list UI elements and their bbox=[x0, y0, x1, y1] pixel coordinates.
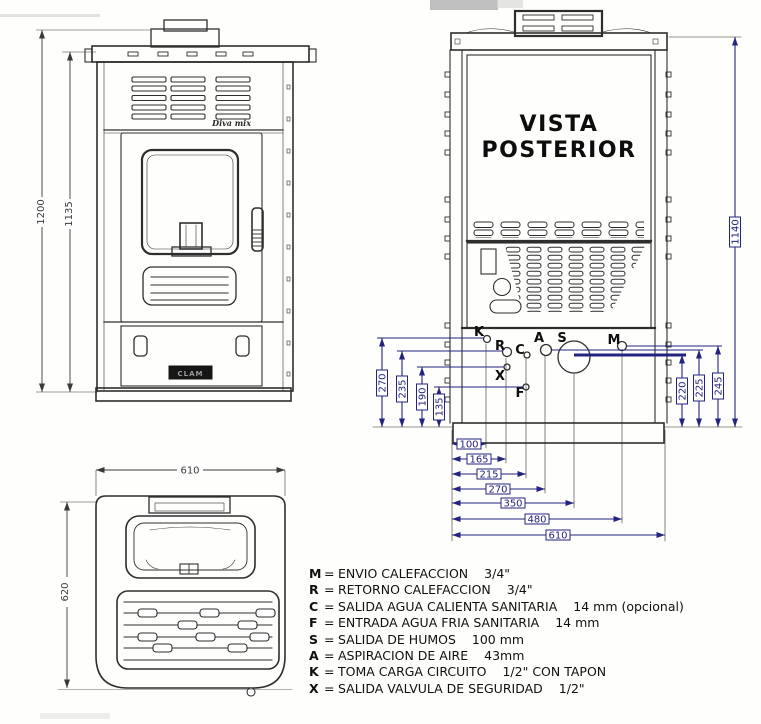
dim-label-215h: 215 bbox=[479, 470, 498, 481]
legend-size: 3/4" bbox=[507, 582, 533, 598]
rear-view-drawing: VISTA POSTERIOR K R C A S M bbox=[373, 11, 742, 541]
port-F-label: F bbox=[516, 386, 525, 401]
top-lid-handle bbox=[149, 497, 230, 513]
port-K-circle bbox=[484, 336, 491, 343]
dim-label-135v: 135 bbox=[435, 397, 446, 416]
legend-description: SALIDA VALVULA DE SEGURIDAD bbox=[338, 681, 543, 697]
technical-drawing-page: Diva mix bbox=[0, 0, 761, 724]
legend-letter: C bbox=[309, 599, 324, 615]
port-C-circle bbox=[524, 352, 530, 358]
dim-label-1135: 1135 bbox=[64, 201, 75, 226]
legend-size: 14 mm bbox=[555, 615, 599, 631]
port-A-label: A bbox=[534, 331, 544, 346]
legend-description: ASPIRACION DE AIRE bbox=[338, 648, 468, 664]
dim-label-610h: 610 bbox=[548, 531, 567, 542]
top-view-dimensions: 610 620 bbox=[58, 465, 285, 689]
legend-description: SALIDA AGUA CALIENTA SANITARIA bbox=[338, 599, 557, 615]
top-plate-slots bbox=[128, 52, 253, 56]
lid bbox=[151, 29, 219, 47]
legend-size: 3/4" bbox=[484, 566, 510, 582]
dim-label-100h: 100 bbox=[459, 440, 478, 451]
dim-label-235v: 235 bbox=[398, 379, 409, 398]
legend-letter: M bbox=[309, 566, 324, 582]
dim-label-1200: 1200 bbox=[36, 199, 47, 224]
legend-size: 1/2" CON TAPON bbox=[502, 664, 606, 680]
dim-label-1140: 1140 bbox=[731, 219, 742, 244]
hinge-marks bbox=[287, 85, 290, 376]
port-A-circle bbox=[541, 345, 552, 356]
legend-item-S: S=SALIDA DE HUMOS100 mm bbox=[309, 632, 684, 648]
hopper-lid bbox=[126, 516, 255, 578]
dim-label-225v: 225 bbox=[695, 378, 706, 397]
legend-separator: = bbox=[324, 632, 338, 648]
legend-item-M: M=ENVIO CALEFACCION3/4" bbox=[309, 566, 684, 582]
port-X-label: X bbox=[495, 369, 505, 384]
dim-label-350h: 350 bbox=[503, 499, 522, 510]
legend-item-R: R=RETORNO CALEFACCION3/4" bbox=[309, 582, 684, 598]
dim-label-480h: 480 bbox=[527, 515, 546, 526]
legend-description: TOMA CARGA CIRCUITO bbox=[338, 664, 486, 680]
legend-letter: A bbox=[309, 648, 324, 664]
legend-separator: = bbox=[324, 615, 338, 631]
port-R-label: R bbox=[495, 339, 505, 354]
dim-label-610: 610 bbox=[180, 466, 199, 477]
dim-label-190v: 190 bbox=[418, 387, 429, 406]
dim-label-165h: 165 bbox=[469, 455, 488, 466]
front-vent-grille bbox=[132, 77, 250, 119]
legend-item-A: A=ASPIRACION DE AIRE43mm bbox=[309, 648, 684, 664]
rear-view-title-line2: POSTERIOR bbox=[482, 138, 637, 163]
front-base bbox=[96, 388, 291, 401]
rear-louver-strip bbox=[473, 221, 644, 238]
rear-fan-grille bbox=[505, 246, 645, 312]
legend-separator: = bbox=[324, 664, 338, 680]
port-S-label: S bbox=[557, 331, 566, 346]
legend-description: ENVIO CALEFACCION bbox=[338, 566, 468, 582]
dim-label-620: 620 bbox=[60, 582, 71, 601]
legend-item-F: F=ENTRADA AGUA FRIA SANITARIA14 mm bbox=[309, 615, 684, 631]
legend-item-X: X=SALIDA VALVULA DE SEGURIDAD1/2" bbox=[309, 681, 684, 697]
door-latch bbox=[180, 223, 202, 249]
lower-air-grille bbox=[143, 267, 236, 305]
legend-letter: K bbox=[309, 664, 324, 680]
legend-letter: X bbox=[309, 681, 324, 697]
port-M-label: M bbox=[608, 333, 621, 348]
rear-view-title-line1: VISTA bbox=[520, 112, 599, 137]
legend-description: ENTRADA AGUA FRIA SANITARIA bbox=[338, 615, 539, 631]
dim-label-270v: 270 bbox=[378, 373, 389, 392]
top-plate bbox=[92, 46, 309, 62]
port-letters: K R C A S M X F bbox=[474, 325, 621, 401]
legend-separator: = bbox=[324, 566, 338, 582]
rear-plinth bbox=[453, 423, 664, 443]
legend-size: 1/2" bbox=[559, 681, 585, 697]
door-window bbox=[142, 150, 238, 254]
legend-separator: = bbox=[324, 681, 338, 697]
legend-size: 43mm bbox=[484, 648, 524, 664]
dim-label-245v: 245 bbox=[714, 376, 725, 395]
ports-legend: M=ENVIO CALEFACCION3/4" R=RETORNO CALEFA… bbox=[309, 566, 684, 697]
legend-size: 100 mm bbox=[472, 632, 524, 648]
legend-size: 14 mm (opcional) bbox=[573, 599, 684, 615]
legend-letter: R bbox=[309, 582, 324, 598]
top-grille bbox=[117, 591, 279, 669]
legend-letter: F bbox=[309, 615, 324, 631]
dim-label-220v: 220 bbox=[678, 381, 689, 400]
port-C-label: C bbox=[515, 343, 525, 358]
front-view-drawing: Diva mix bbox=[85, 20, 316, 401]
legend-description: RETORNO CALEFACCION bbox=[338, 582, 491, 598]
side-handle bbox=[252, 208, 263, 251]
legend-letter: S bbox=[309, 632, 324, 648]
legend-item-K: K=TOMA CARGA CIRCUITO1/2" CON TAPON bbox=[309, 664, 684, 680]
legend-item-C: C=SALIDA AGUA CALIENTA SANITARIA14 mm (o… bbox=[309, 599, 684, 615]
model-badge: Diva mix bbox=[211, 118, 251, 128]
legend-description: SALIDA DE HUMOS bbox=[338, 632, 456, 648]
dim-label-270h: 270 bbox=[488, 485, 507, 496]
brand-badge-text: CLAM bbox=[178, 370, 204, 378]
legend-separator: = bbox=[324, 648, 338, 664]
legend-separator: = bbox=[324, 582, 338, 598]
front-dimensions: 1200 1135 bbox=[34, 30, 150, 392]
top-view-drawing bbox=[58, 496, 292, 696]
legend-separator: = bbox=[324, 599, 338, 615]
